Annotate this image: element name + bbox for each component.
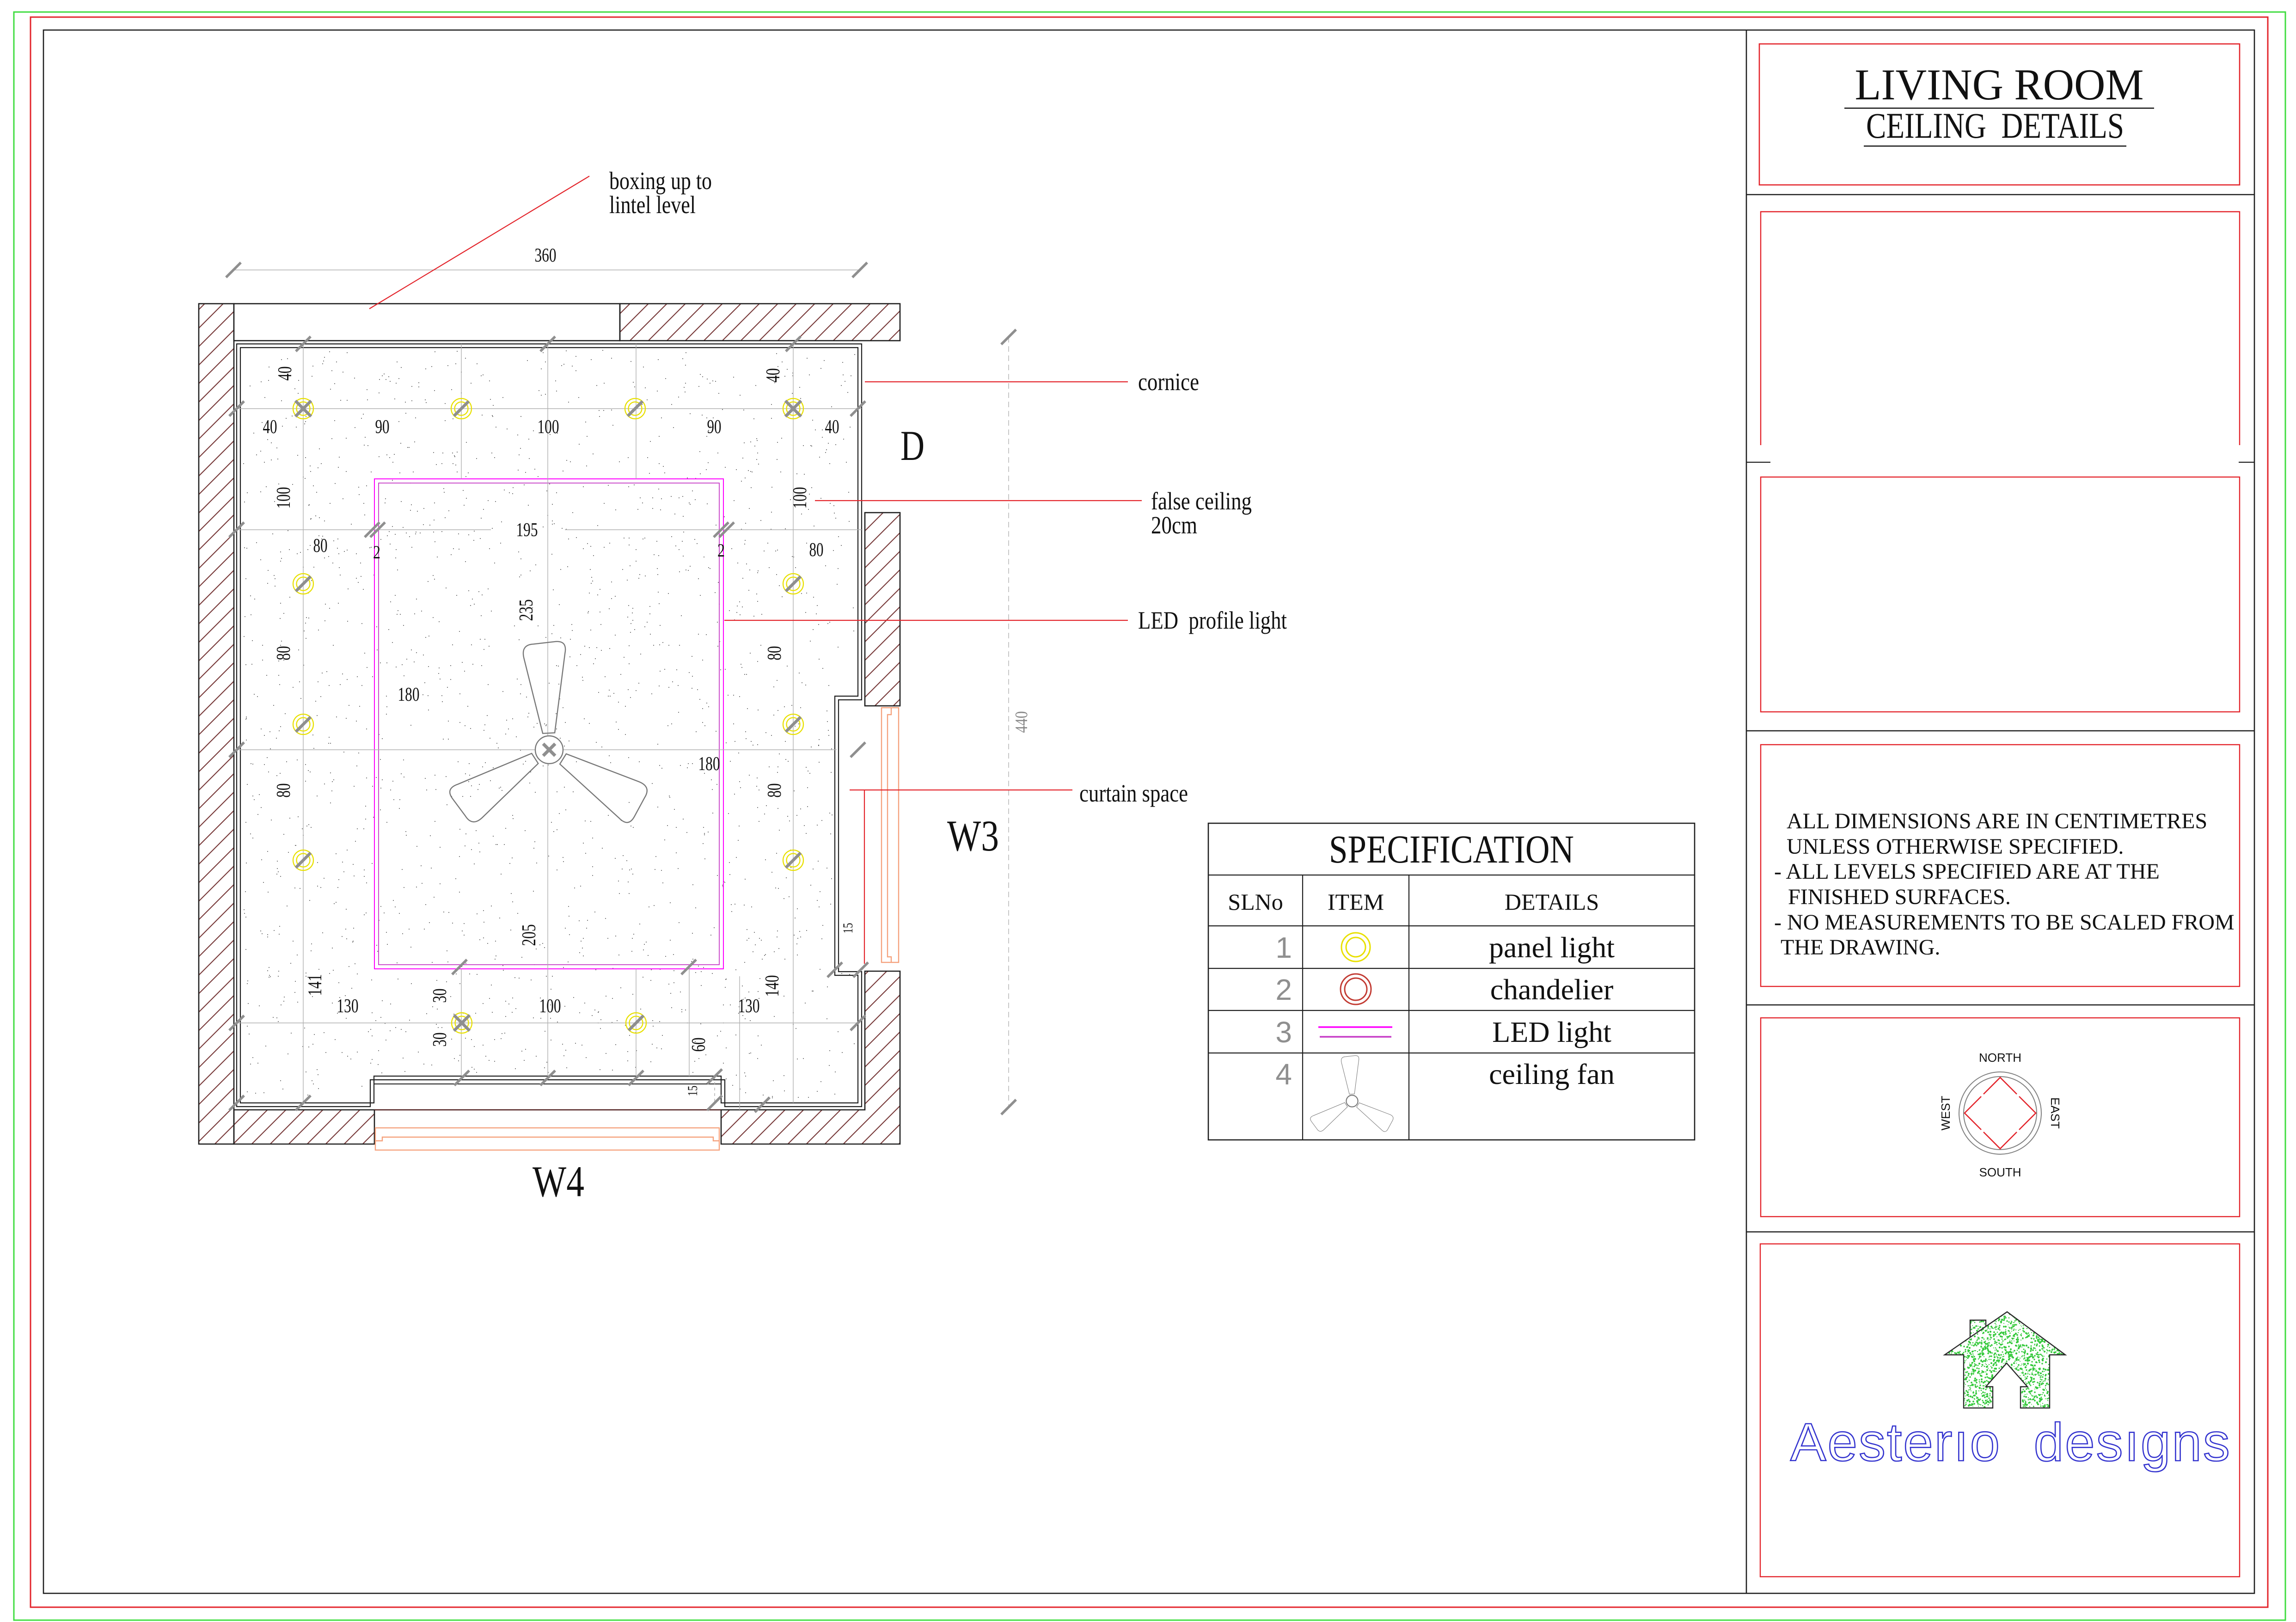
svg-text:ALL DIMENSIONS ARE IN CENTIMET: ALL DIMENSIONS ARE IN CENTIMETRES — [1787, 809, 2207, 833]
svg-text:curtain space: curtain space — [1079, 779, 1188, 807]
svg-text:140: 140 — [762, 975, 783, 997]
svg-text:100: 100 — [539, 996, 561, 1017]
svg-text:ceiling fan: ceiling fan — [1489, 1058, 1615, 1090]
svg-text:ITEM: ITEM — [1328, 889, 1384, 915]
svg-text:LED profile light: LED profile light — [1138, 606, 1287, 634]
svg-text:UNLESS OTHERWISE SPECIFIED.: UNLESS OTHERWISE SPECIFIED. — [1787, 834, 2124, 859]
svg-text:20cm: 20cm — [1151, 511, 1197, 539]
svg-text:WEST: WEST — [1939, 1096, 1953, 1130]
svg-text:15: 15 — [685, 1086, 700, 1096]
svg-text:W4: W4 — [533, 1157, 584, 1206]
svg-text:- ALL LEVELS SPECIFIED ARE AT: - ALL LEVELS SPECIFIED ARE AT THE — [1774, 859, 2160, 884]
svg-text:2: 2 — [1275, 973, 1292, 1006]
svg-text:lintel level: lintel level — [609, 191, 696, 219]
svg-text:2: 2 — [717, 540, 725, 561]
svg-text:80: 80 — [273, 783, 294, 798]
svg-text:15: 15 — [840, 923, 856, 934]
svg-text:80: 80 — [273, 646, 294, 661]
svg-text:- NO MEASUREMENTS TO BE SCALED: - NO MEASUREMENTS TO BE SCALED FROM — [1774, 910, 2235, 935]
svg-text:205: 205 — [519, 924, 540, 946]
svg-text:SLNo: SLNo — [1228, 889, 1283, 915]
svg-text:30: 30 — [429, 1033, 451, 1047]
svg-text:195: 195 — [516, 520, 538, 541]
svg-text:NORTH: NORTH — [1979, 1051, 2021, 1065]
svg-text:2: 2 — [373, 542, 380, 563]
svg-text:DETAILS: DETAILS — [1505, 889, 1599, 915]
svg-text:40: 40 — [825, 416, 839, 438]
svg-text:false ceiling: false ceiling — [1151, 487, 1252, 515]
svg-text:30: 30 — [429, 989, 451, 1003]
svg-text:chandelier: chandelier — [1490, 973, 1614, 1006]
svg-text:180: 180 — [398, 684, 420, 705]
svg-text:boxing up to: boxing up to — [609, 167, 712, 195]
svg-text:360: 360 — [535, 245, 557, 266]
svg-text:W3: W3 — [947, 811, 999, 860]
svg-text:80: 80 — [764, 646, 785, 661]
svg-text:Aesterıo desıgns: Aesterıo desıgns — [1790, 1412, 2231, 1472]
svg-text:cornice: cornice — [1138, 368, 1199, 396]
svg-text:1: 1 — [1275, 931, 1292, 964]
svg-text:EAST: EAST — [2048, 1097, 2062, 1129]
svg-text:CEILING DETAILS: CEILING DETAILS — [1866, 105, 2124, 146]
svg-text:panel light: panel light — [1489, 931, 1615, 964]
svg-text:80: 80 — [764, 783, 785, 798]
svg-text:D: D — [900, 422, 925, 469]
svg-text:90: 90 — [707, 416, 722, 438]
svg-text:4: 4 — [1275, 1058, 1292, 1091]
svg-text:3: 3 — [1275, 1016, 1292, 1049]
svg-text:40: 40 — [263, 416, 277, 438]
svg-text:SOUTH: SOUTH — [1979, 1165, 2021, 1179]
svg-text:LED light: LED light — [1492, 1016, 1611, 1048]
svg-text:100: 100 — [273, 487, 294, 509]
svg-text:130: 130 — [337, 996, 359, 1017]
svg-text:130: 130 — [738, 996, 760, 1017]
svg-text:90: 90 — [375, 416, 390, 438]
svg-text:80: 80 — [809, 539, 824, 561]
svg-text:80: 80 — [313, 535, 328, 557]
svg-text:40: 40 — [763, 368, 784, 383]
svg-text:60: 60 — [688, 1038, 710, 1052]
svg-text:440: 440 — [1012, 711, 1031, 733]
svg-text:40: 40 — [275, 367, 296, 381]
svg-text:141: 141 — [305, 974, 326, 996]
svg-text:SPECIFICATION: SPECIFICATION — [1329, 827, 1574, 871]
svg-text:100: 100 — [790, 487, 811, 509]
svg-text:100: 100 — [538, 416, 559, 438]
svg-text:THE DRAWING.: THE DRAWING. — [1781, 935, 1940, 960]
svg-text:235: 235 — [516, 600, 537, 621]
svg-text:FINISHED SURFACES.: FINISHED SURFACES. — [1788, 885, 2011, 909]
svg-text:LIVING ROOM: LIVING ROOM — [1855, 60, 2144, 109]
svg-text:180: 180 — [698, 753, 720, 775]
